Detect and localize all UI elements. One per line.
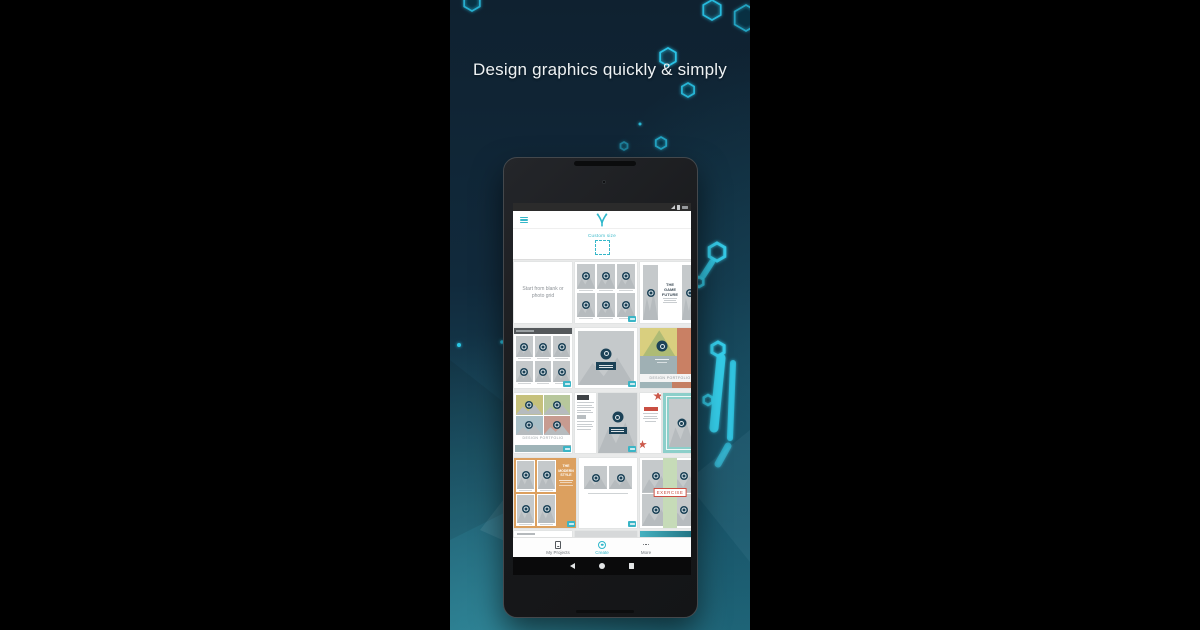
- image-placeholder-icon: [582, 272, 590, 280]
- app-bar: [513, 211, 691, 228]
- photo-placeholder: [577, 293, 595, 320]
- image-placeholder-icon: [558, 368, 566, 376]
- image-placeholder-icon: [680, 472, 688, 480]
- template-card-framed-photo[interactable]: [663, 393, 691, 453]
- nav-more[interactable]: More: [631, 541, 661, 555]
- image-placeholder-icon: [652, 506, 660, 514]
- template-card-start-blank[interactable]: Start from blank or photo grid: [514, 262, 572, 323]
- template-card-game-future[interactable]: THE GAME FUTURE: [640, 262, 691, 323]
- wifi-icon: [671, 205, 675, 209]
- template-grid: Start from blank or photo grid: [513, 260, 691, 537]
- recents-icon[interactable]: [629, 563, 634, 569]
- nav-label: Create: [595, 550, 609, 555]
- image-placeholder-icon: [680, 506, 688, 514]
- template-card-partial[interactable]: [575, 531, 637, 537]
- clock-icon: [682, 206, 688, 209]
- template-card-portfolio-color[interactable]: DESIGN PORTFOLIO: [640, 328, 691, 388]
- image-placeholder-icon: [543, 471, 551, 479]
- template-card-photo-tour[interactable]: [575, 328, 637, 388]
- price-badge: [567, 521, 575, 527]
- home-icon[interactable]: [599, 563, 605, 569]
- template-card-partial[interactable]: [514, 531, 572, 537]
- template-card-partial[interactable]: [640, 531, 691, 537]
- template-card-splash-poster[interactable]: [640, 393, 661, 453]
- tablet-device: Custom size Start from blank or photo gr…: [503, 157, 698, 618]
- template-card-editorial[interactable]: [575, 393, 596, 453]
- projects-device-icon: [555, 541, 561, 549]
- price-badge: [628, 446, 636, 452]
- starburst-shape: [640, 440, 647, 449]
- image-placeholder-icon: [553, 421, 561, 429]
- price-badge: [563, 381, 571, 387]
- template-card-poster-photo[interactable]: [598, 393, 637, 453]
- image-placeholder-icon: [525, 421, 533, 429]
- portfolio-caption: DESIGN PORTFOLIO: [514, 436, 572, 440]
- nav-label: My Projects: [546, 550, 570, 555]
- image-placeholder-icon: [677, 419, 686, 428]
- game-future-title: THE GAME FUTURE: [661, 282, 679, 297]
- template-card-two-photos[interactable]: [579, 458, 637, 528]
- battery-icon: [677, 205, 680, 210]
- format-picker: Custom size: [513, 228, 691, 260]
- image-placeholder-icon: [582, 301, 590, 309]
- price-badge: [628, 521, 636, 527]
- image-placeholder-icon: [686, 289, 692, 297]
- template-card-modern-style[interactable]: THE MODERN STYLE: [514, 458, 576, 528]
- photo-placeholder: [516, 336, 533, 359]
- image-placeholder-icon: [602, 301, 610, 309]
- image-placeholder-icon: [520, 343, 528, 351]
- image-placeholder-icon: [601, 348, 612, 359]
- photo-placeholder: [516, 361, 533, 384]
- template-card-exercise[interactable]: EXERCISE: [640, 458, 691, 528]
- desygner-logo: [596, 213, 609, 227]
- front-camera-dot: [602, 180, 606, 184]
- custom-size-label: Custom size: [588, 233, 616, 238]
- modern-style-title: THE MODERN STYLE: [558, 464, 574, 478]
- image-placeholder-icon: [522, 471, 530, 479]
- template-card-website-collage[interactable]: [514, 328, 572, 388]
- bottom-port-slot: [576, 610, 634, 613]
- status-bar: [513, 203, 691, 211]
- app-screen: Custom size Start from blank or photo gr…: [513, 203, 691, 575]
- promo-background: Design graphics quickly & simply: [450, 0, 750, 630]
- photo-placeholder: [577, 264, 595, 291]
- nav-my-projects[interactable]: My Projects: [543, 541, 573, 555]
- custom-size-option[interactable]: [595, 240, 610, 255]
- photo-placeholder: [553, 336, 570, 359]
- template-card-photo-collage[interactable]: [575, 262, 637, 323]
- speaker-slot-icon: [574, 161, 636, 166]
- image-placeholder-icon: [602, 272, 610, 280]
- image-placeholder-icon: [657, 341, 668, 352]
- portfolio-caption: DESIGN PORTFOLIO: [640, 374, 691, 382]
- image-placeholder-icon: [652, 472, 660, 480]
- ellipsis-icon: [643, 541, 649, 549]
- price-badge: [628, 381, 636, 387]
- template-card-portfolio-grid[interactable]: DESIGN PORTFOLIO: [514, 393, 572, 453]
- photo-placeholder: [535, 361, 552, 384]
- start-blank-label: Start from blank or photo grid: [522, 286, 564, 299]
- hamburger-menu-icon[interactable]: [520, 217, 528, 223]
- image-placeholder-icon: [553, 401, 561, 409]
- image-placeholder-icon: [558, 343, 566, 351]
- android-nav-bar: [513, 557, 691, 575]
- exercise-label: EXERCISE: [654, 488, 687, 497]
- image-placeholder-icon: [539, 368, 547, 376]
- image-placeholder-icon: [522, 505, 530, 513]
- photo-placeholder: [535, 336, 552, 359]
- image-placeholder-icon: [520, 368, 528, 376]
- photo-placeholder: [597, 293, 615, 320]
- price-badge: [628, 316, 636, 322]
- photo-placeholder: [617, 264, 635, 291]
- photo-placeholder: [597, 264, 615, 291]
- bottom-navigation: My Projects Create More: [513, 537, 691, 557]
- image-placeholder-icon: [622, 301, 630, 309]
- image-placeholder-icon: [592, 474, 600, 482]
- nav-create[interactable]: Create: [587, 541, 617, 555]
- image-placeholder-icon: [539, 343, 547, 351]
- image-placeholder-icon: [612, 412, 623, 423]
- image-placeholder-icon: [525, 401, 533, 409]
- starburst-shape: [653, 393, 661, 401]
- image-placeholder-icon: [617, 474, 625, 482]
- create-circle-icon: [598, 541, 606, 549]
- image-placeholder-icon: [543, 505, 551, 513]
- image-placeholder-icon: [622, 272, 630, 280]
- nav-label: More: [641, 550, 651, 555]
- price-badge: [563, 446, 571, 452]
- back-icon[interactable]: [570, 563, 575, 569]
- image-placeholder-icon: [647, 289, 655, 297]
- headline: Design graphics quickly & simply: [450, 60, 750, 80]
